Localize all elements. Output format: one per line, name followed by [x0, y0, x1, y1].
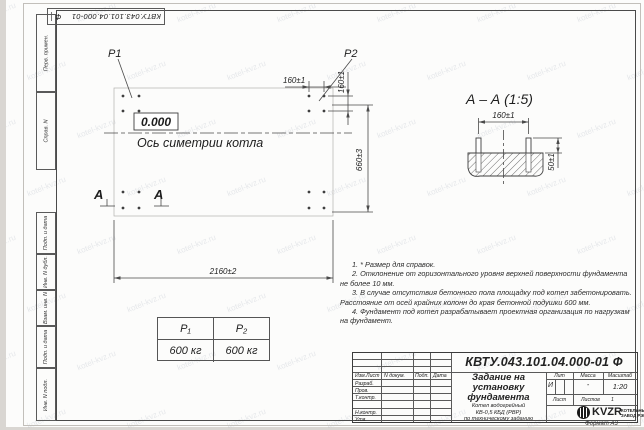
elevation-value: 0.000 — [141, 115, 171, 129]
foundation-outline — [114, 88, 333, 216]
section-dim-bolts: 160±1 — [492, 111, 514, 120]
tb-scale-value: 1:20 — [603, 382, 637, 391]
load-table-value-p1: 600 кг — [158, 340, 214, 362]
tb-subtitle-line3: по техническому заданию — [451, 416, 546, 422]
tb-sheet-label: Лист — [546, 397, 573, 403]
note-3: 3. В случае отсутствия бетонного пола пл… — [340, 288, 632, 307]
tb-row-utv: Утв. — [355, 417, 367, 423]
margin-cell-invpodl: Инв. N подл. — [36, 368, 56, 421]
section-title: А – А (1:5) — [465, 91, 533, 107]
margin-label-vzam: Взам. инв. N — [43, 292, 49, 324]
p1-label: P1 — [108, 48, 121, 60]
section-mark-letter-right: А — [153, 187, 163, 202]
tb-col-izm: Изм.Лист — [355, 373, 379, 379]
titleblock-doc-number: КВТУ.043.101.04.000-01 Ф — [451, 353, 637, 372]
tb-lit-label: Лит — [546, 373, 573, 379]
margin-label-podp2: Подп. и дата — [43, 330, 49, 364]
load-table-header-p2: P₂ — [214, 318, 269, 339]
tb-row-nkontr: Н.контр. — [355, 410, 377, 416]
margin-cell-perv: Перв. примен. — [36, 14, 56, 92]
tb-row-tkontr: Т.контр. — [355, 395, 376, 401]
section-view: А – А (1:5) 160±1 50±1 — [440, 70, 644, 200]
plan-dim-bolt-vertical: 160±1 — [337, 71, 346, 93]
load-table-header-p1: P₁ — [158, 318, 214, 339]
margin-cell-vzam: Взам. инв. N — [36, 290, 56, 326]
load-table: P₁ P₂ 600 кг 600 кг — [157, 317, 270, 361]
tb-row-prov: Пров. — [355, 388, 369, 394]
axis-label: Ось симетрии котла — [137, 136, 263, 150]
tb-title-line3: фундамента — [451, 393, 546, 403]
title-block: КВТУ.043.101.04.000-01 Ф Изм.Лист N доку… — [352, 352, 638, 423]
notes-block: 1. * Размер для справок. 2. Отклонение о… — [340, 260, 632, 326]
drawing-sheet: kotel-kvz.rukotel-kvz.rukotel-kvz.rukote… — [6, 0, 644, 427]
note-2: 2. Отклонение от горизонтального уровня … — [340, 269, 632, 288]
section-dim-height: 50±1 — [547, 153, 556, 171]
tb-scale-label: Масштаб — [603, 373, 637, 379]
plan-dim-width: 2160±2 — [209, 267, 237, 276]
kvzr-logo-text: KVZR — [592, 406, 622, 418]
p2-leader-line — [319, 59, 352, 101]
margin-label-sprav: Справ. N — [43, 119, 49, 142]
kvzr-logo-emblem — [577, 406, 590, 419]
p1-leader-line — [118, 59, 132, 98]
plan-dim-height: 660±3 — [355, 148, 364, 171]
margin-cell-sprav: Справ. N — [36, 92, 56, 170]
tb-col-podp: Подп. — [415, 373, 429, 379]
margin-label-invdubl: Инв. N дубл. — [43, 256, 49, 288]
kvzr-company-sub: КОТЕЛЬНЫЙ ЗАВОД РЭП — [621, 408, 644, 418]
tb-sheets-value: 1 — [611, 397, 614, 403]
tb-row-razrab: Разраб. — [355, 381, 374, 387]
anchor-bolts — [122, 95, 326, 210]
kvzr-company-sub-line2: ЗАВОД РЭП — [621, 413, 644, 418]
tb-lit-value: И — [546, 382, 555, 389]
tb-sheets-label: Листов — [581, 397, 600, 403]
tb-subtitle-line1: Котел водогрейный — [451, 403, 546, 409]
margin-label-podp1: Подп. и дата — [43, 216, 49, 250]
plan-dim-bolt-horizontal: 160±1 — [283, 76, 305, 85]
tb-mass-value: - — [573, 382, 603, 389]
tb-subtitle-line2: КВ-0,5 КБД (РВР) — [451, 410, 546, 416]
margin-label-perv: Перв. примен. — [43, 35, 49, 72]
note-4: 4. Фундамент под котел разрабатывает про… — [340, 307, 632, 326]
load-table-value-p2: 600 кг — [214, 340, 269, 362]
tb-mass-label: Масса — [573, 373, 603, 379]
tb-col-ndokum: N докум. — [384, 373, 405, 379]
note-1: 1. * Размер для справок. — [340, 260, 632, 269]
tb-col-data: Дата — [433, 373, 447, 379]
p2-label: P2 — [344, 48, 357, 60]
margin-cell-podp2: Подп. и дата — [36, 326, 56, 368]
stamp-doc-number: КВТУ.043.101.04.000-01 — [72, 12, 161, 21]
format-label: Формат А3 — [585, 421, 618, 427]
margin-cell-invdubl: Инв. N дубл. — [36, 254, 56, 290]
margin-cell-podp1: Подп. и дата — [36, 212, 56, 254]
margin-label-invpodl: Инв. N подл. — [43, 378, 49, 410]
section-mark-letter-left: А — [93, 187, 103, 202]
top-stamp: КВТУ.043.101.04.000-01 Ф — [47, 8, 165, 25]
